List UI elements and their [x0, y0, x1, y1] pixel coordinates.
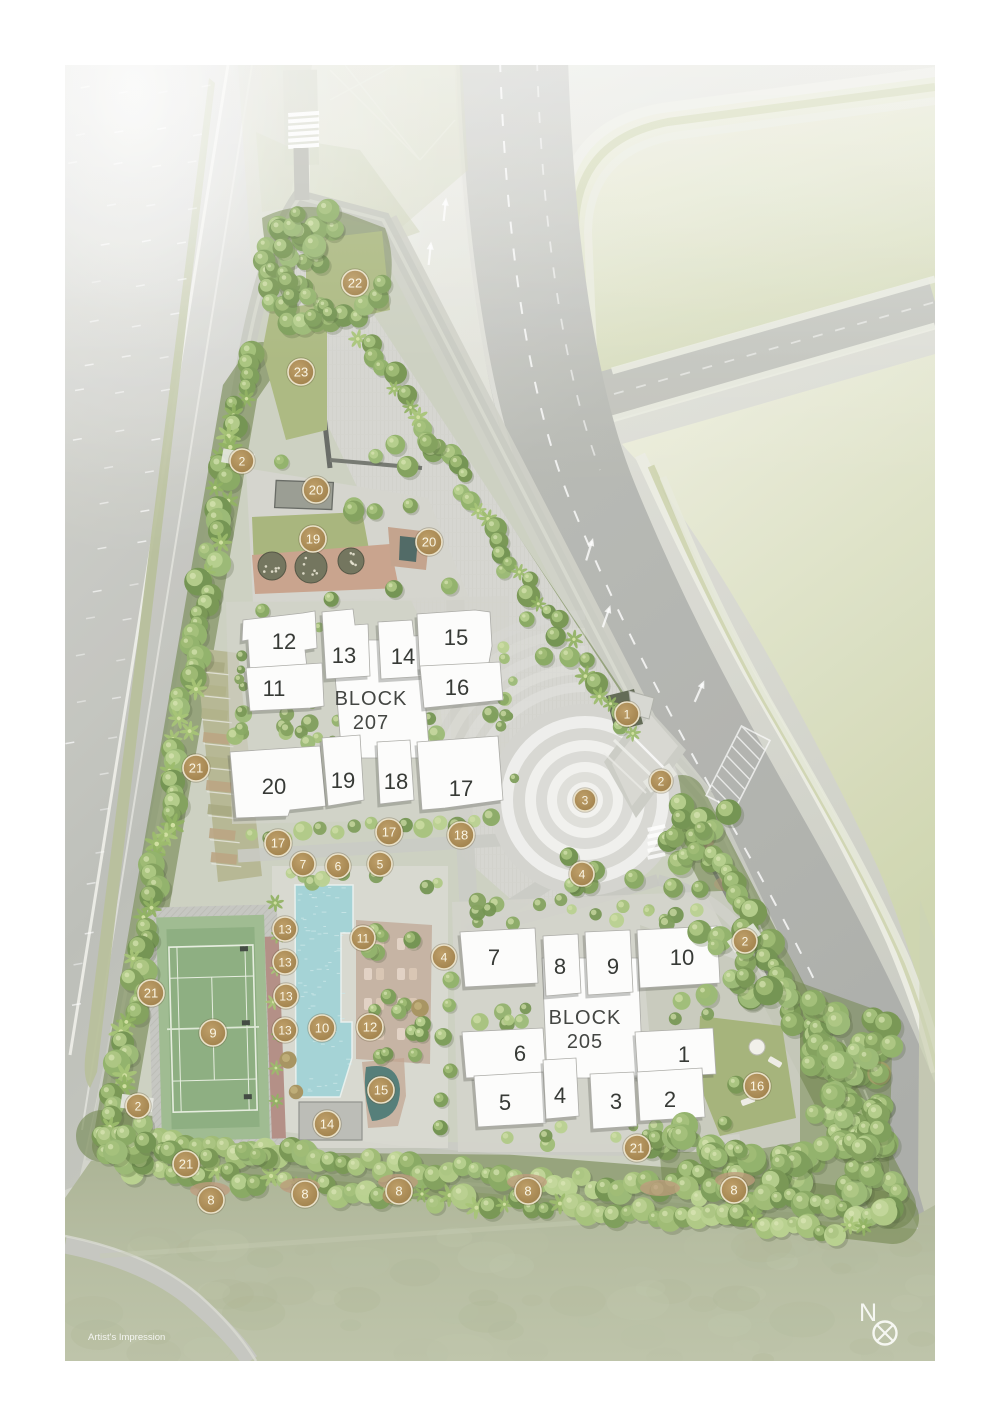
svg-text:17: 17 [382, 825, 396, 840]
svg-text:13: 13 [278, 922, 292, 936]
svg-text:2: 2 [239, 454, 246, 468]
svg-text:11: 11 [357, 931, 370, 945]
svg-text:5: 5 [377, 857, 384, 871]
svg-text:19: 19 [306, 532, 320, 547]
svg-text:7: 7 [300, 857, 307, 871]
svg-text:4: 4 [441, 950, 448, 964]
svg-text:21: 21 [630, 1141, 644, 1156]
svg-text:14: 14 [320, 1117, 334, 1132]
svg-text:13: 13 [278, 1023, 292, 1037]
svg-text:2: 2 [742, 934, 749, 948]
svg-text:8: 8 [207, 1193, 214, 1208]
svg-text:N: N [859, 1299, 877, 1327]
svg-text:8: 8 [730, 1183, 737, 1198]
svg-text:17: 17 [271, 836, 285, 851]
svg-text:18: 18 [454, 828, 468, 843]
svg-text:23: 23 [294, 365, 308, 380]
svg-text:10: 10 [315, 1021, 329, 1036]
svg-text:12: 12 [363, 1020, 377, 1035]
svg-text:Artist's Impression: Artist's Impression [88, 1332, 165, 1343]
svg-text:21: 21 [189, 761, 203, 776]
svg-text:8: 8 [524, 1184, 531, 1199]
svg-text:3: 3 [582, 793, 589, 807]
svg-text:20: 20 [309, 483, 323, 498]
svg-text:4: 4 [579, 867, 586, 881]
svg-text:1: 1 [624, 707, 631, 721]
svg-text:13: 13 [278, 955, 292, 969]
svg-text:2: 2 [658, 774, 665, 788]
svg-text:8: 8 [301, 1187, 308, 1202]
svg-text:6: 6 [335, 859, 342, 873]
svg-text:2: 2 [135, 1099, 142, 1113]
svg-text:21: 21 [144, 986, 158, 1001]
svg-text:8: 8 [395, 1184, 402, 1199]
svg-text:16: 16 [750, 1079, 764, 1094]
svg-text:20: 20 [422, 535, 436, 550]
svg-text:13: 13 [279, 989, 293, 1003]
svg-text:9: 9 [209, 1026, 216, 1041]
svg-text:21: 21 [179, 1157, 193, 1172]
svg-text:15: 15 [374, 1083, 388, 1098]
